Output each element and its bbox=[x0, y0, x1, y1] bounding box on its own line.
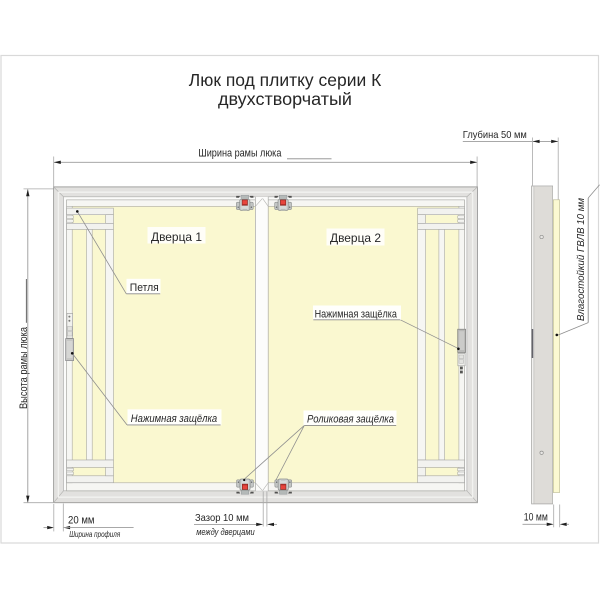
svg-text:Ширина рамы люка: Ширина рамы люка bbox=[198, 148, 281, 160]
svg-text:Зазор 10 мм: Зазор 10 мм bbox=[195, 513, 249, 524]
svg-text:10 мм: 10 мм bbox=[524, 512, 548, 524]
svg-text:Дверца 2: Дверца 2 bbox=[330, 231, 381, 245]
svg-text:Роликовая защёлка: Роликовая защёлка bbox=[307, 414, 394, 426]
svg-text:Нажимная защёлка: Нажимная защёлка bbox=[131, 413, 217, 425]
svg-text:между дверцами: между дверцами bbox=[196, 527, 255, 537]
svg-text:Ширина профиля: Ширина профиля bbox=[69, 529, 120, 539]
svg-text:Влагостойкий ГВЛВ 10 мм: Влагостойкий ГВЛВ 10 мм bbox=[575, 198, 587, 321]
svg-text:Петля: Петля bbox=[130, 282, 159, 294]
svg-text:Глубина 50 мм: Глубина 50 мм bbox=[463, 129, 527, 141]
svg-text:Дверца 1: Дверца 1 bbox=[151, 230, 202, 244]
svg-text:Нажимная защёлка: Нажимная защёлка bbox=[315, 308, 397, 320]
svg-text:20 мм: 20 мм bbox=[68, 514, 95, 526]
svg-text:двухстворчатый: двухстворчатый bbox=[218, 89, 352, 109]
svg-text:Люк под плитку серии К: Люк под плитку серии К bbox=[189, 70, 382, 90]
